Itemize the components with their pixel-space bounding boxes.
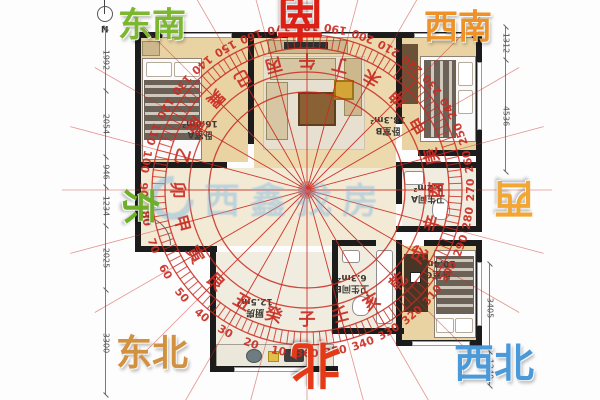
- pillow-icon: [458, 90, 473, 114]
- coffee-table-icon: [298, 92, 336, 126]
- kitchen-sink-icon: [246, 349, 262, 363]
- sink-icon: [342, 250, 360, 263]
- room-name: 卫生间B: [335, 283, 369, 293]
- dimension-tick: [103, 392, 109, 398]
- direction-label-southwest: 西南: [424, 0, 492, 49]
- watermark: 西鑫找房: [150, 172, 388, 224]
- direction-label-west: 西: [494, 173, 534, 231]
- wall: [396, 162, 402, 204]
- dimension-value: 3300: [102, 332, 111, 352]
- room-name: 卧室A: [188, 129, 213, 139]
- pillow-icon: [458, 62, 473, 86]
- wall: [396, 162, 482, 168]
- direction-label-east: 东: [116, 187, 171, 225]
- wall: [135, 162, 227, 168]
- pillow-icon: [174, 62, 200, 77]
- dimension-value: 3405: [486, 298, 495, 318]
- fengshui-floorplan: 卧室A 16.0m² 卧室B 18.3m² 卫生间A 5.2m² 卫生间B 6.…: [0, 0, 600, 400]
- room-label-bedroom-b: 卧室B 18.3m²: [370, 113, 406, 135]
- wall: [135, 246, 217, 252]
- dimension-value: 2025: [102, 248, 111, 268]
- dimension-value: 1312: [502, 33, 511, 53]
- dimension-value: 1992: [102, 49, 111, 69]
- room-name: 卧室C: [426, 269, 451, 279]
- room-area: 18.3m²: [370, 114, 406, 124]
- toilet-icon: [352, 296, 370, 316]
- wall: [210, 246, 216, 372]
- wall: [418, 150, 482, 156]
- bathtub-icon: [376, 250, 393, 324]
- direction-label-northwest: 西北: [454, 331, 534, 389]
- wall: [332, 328, 404, 334]
- room-area: 5.2m²: [413, 182, 442, 192]
- room-label-bathroom-b: 卫生间B 6.3m²: [335, 271, 369, 293]
- window: [477, 262, 482, 326]
- room-area: 6.3m²: [337, 272, 366, 282]
- svg-text:340: 340: [350, 333, 376, 353]
- sofa-icon: [270, 58, 336, 80]
- window: [477, 62, 482, 130]
- dimension-value: 1234: [102, 196, 111, 216]
- dimension-value: 946: [102, 164, 111, 179]
- room-name: 厨房: [246, 307, 264, 317]
- north-circle-icon: [97, 6, 113, 22]
- pillow-icon: [436, 318, 454, 333]
- wall: [424, 240, 482, 246]
- blanket-icon: [424, 60, 456, 138]
- wall: [396, 240, 402, 346]
- direction-label-south: 南: [276, 0, 324, 57]
- svg-text:60: 60: [156, 262, 175, 282]
- wall: [396, 32, 402, 124]
- svg-text:50: 50: [172, 285, 192, 305]
- room-area: 10.4m²: [420, 258, 456, 268]
- appliance-icon: [268, 351, 279, 362]
- room-label-kitchen: 厨房 12.5m²: [237, 295, 273, 317]
- direction-label-southeast: 东南: [118, 0, 186, 47]
- wall: [332, 240, 376, 246]
- room-area: 16.0m²: [182, 118, 218, 128]
- wall: [248, 32, 254, 144]
- pillow-icon: [146, 62, 172, 77]
- sofa-side-icon: [266, 82, 288, 140]
- room-area: 12.5m²: [237, 296, 273, 306]
- room-label-bedroom-a: 卧室A 16.0m²: [182, 117, 218, 139]
- wall: [396, 226, 482, 232]
- room-label-bathroom-a: 卫生间A 5.2m²: [411, 181, 445, 203]
- dimension-value: 2054: [102, 114, 111, 134]
- direction-label-north: 北: [291, 332, 341, 400]
- dimension-value: 4536: [502, 106, 511, 126]
- room-name: 卫生间A: [411, 193, 445, 203]
- artwork-icon: [334, 80, 354, 100]
- watermark-text: 西鑫找房: [204, 172, 388, 224]
- room-label-bedroom-c: 卧室C 10.4m²: [420, 257, 456, 279]
- wardrobe-icon: [402, 44, 418, 104]
- direction-label-northeast: 东北: [116, 324, 188, 376]
- room-name: 卧室B: [376, 125, 401, 135]
